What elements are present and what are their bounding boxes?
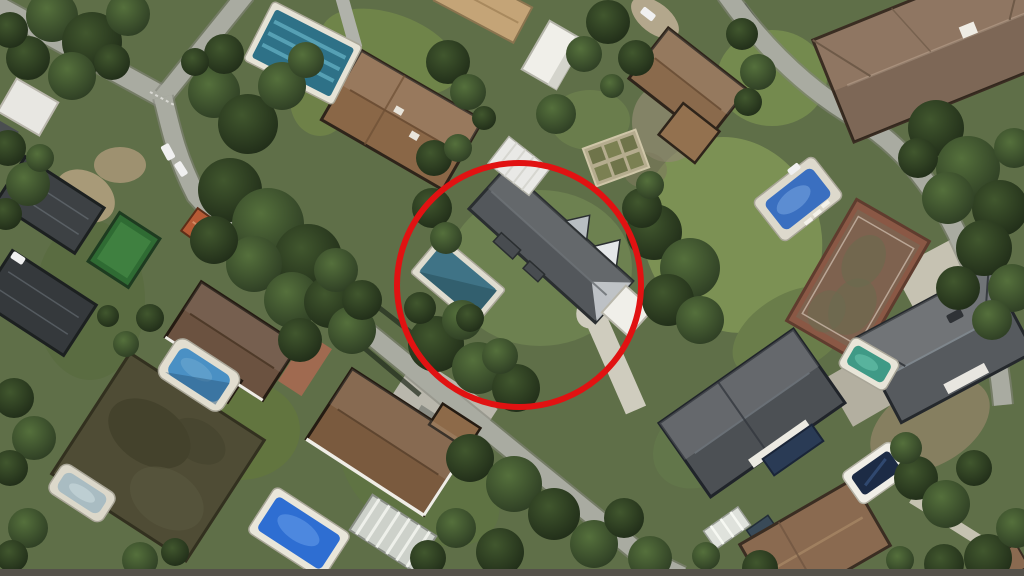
neighborhood-map — [0, 0, 1024, 576]
gravel-patch — [94, 147, 146, 183]
image-bottom-edge — [0, 569, 1024, 576]
satellite-image — [0, 0, 1024, 576]
